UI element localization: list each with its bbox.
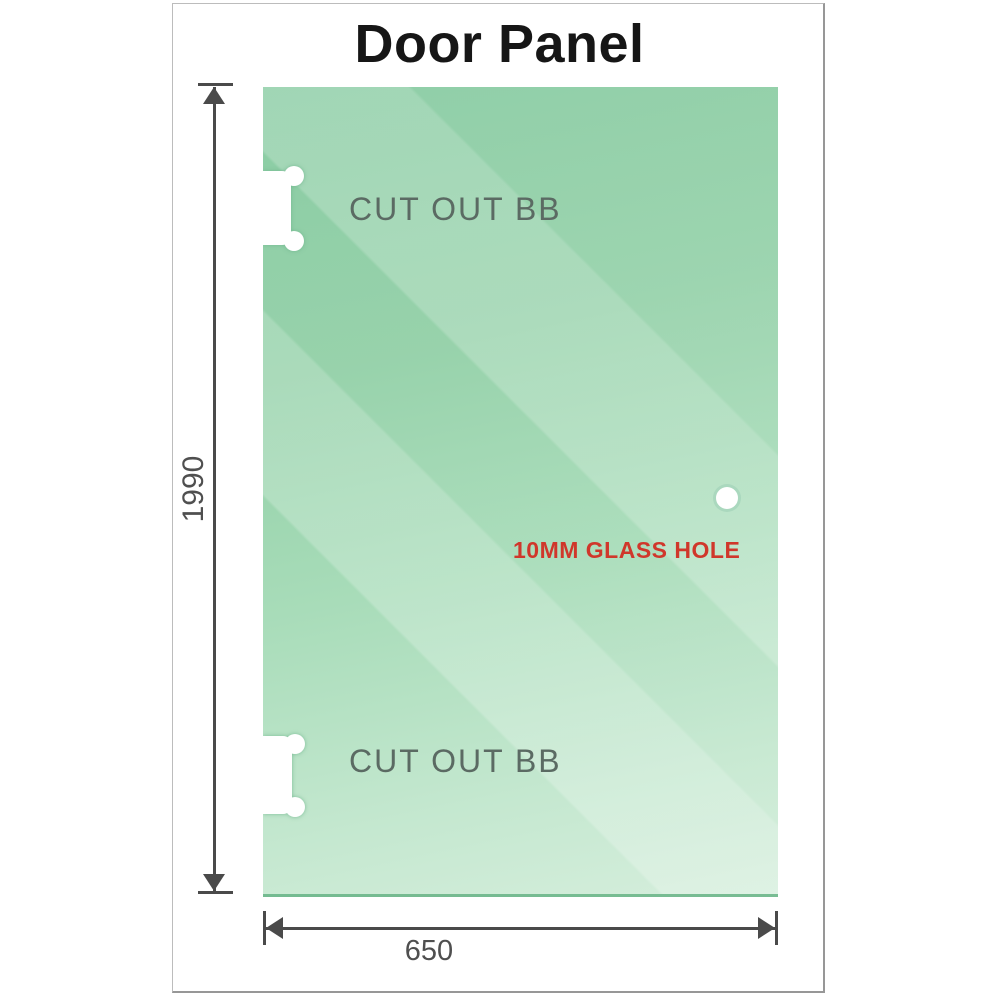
arrow-up-icon bbox=[203, 87, 225, 104]
height-dimension-cap-bottom bbox=[198, 891, 233, 894]
glass-hole bbox=[713, 484, 741, 512]
cutout-lobe-lower bbox=[284, 231, 304, 251]
cutout-top-label: CUT OUT BB bbox=[349, 191, 562, 228]
cutout-lobe-lower bbox=[285, 797, 305, 817]
cutout-lobe-upper bbox=[285, 734, 305, 754]
cutout-bb-bottom bbox=[263, 734, 307, 820]
width-dimension-value: 650 bbox=[383, 934, 475, 968]
cutout-bottom-label: CUT OUT BB bbox=[349, 743, 562, 780]
arrow-right-icon bbox=[758, 917, 775, 939]
glass-panel: CUT OUT BB CUT OUT BB 10MM GLASS HOLE bbox=[263, 87, 778, 897]
height-dimension-line bbox=[213, 87, 216, 893]
width-dimension-tick-right bbox=[775, 911, 778, 945]
arrow-left-icon bbox=[266, 917, 283, 939]
arrow-down-icon bbox=[203, 874, 225, 891]
glass-hole-label: 10MM GLASS HOLE bbox=[513, 537, 733, 563]
cutout-bb-top bbox=[263, 166, 307, 252]
cutout-lobe-upper bbox=[284, 166, 304, 186]
height-dimension-cap-top bbox=[198, 83, 233, 86]
width-dimension-line bbox=[264, 927, 777, 930]
height-dimension-value: 1990 bbox=[178, 443, 210, 535]
page-title: Door Panel bbox=[173, 14, 826, 74]
